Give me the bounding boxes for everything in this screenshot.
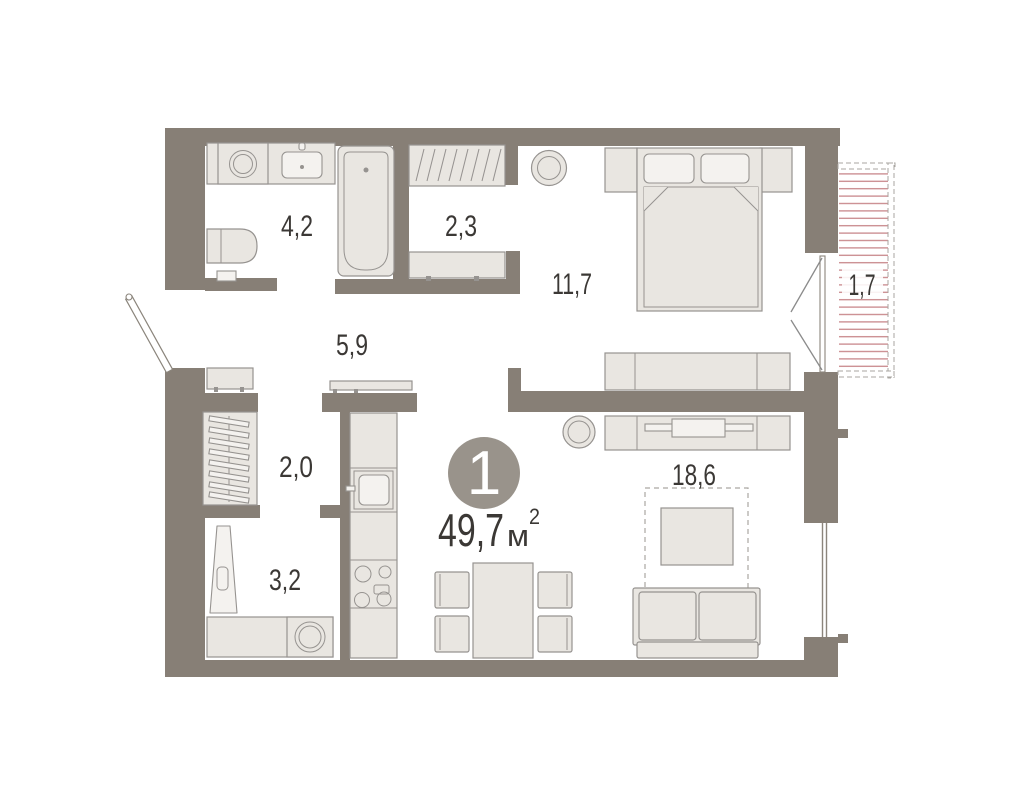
living-room-furniture (563, 416, 790, 658)
total-area-value: 49,7 (438, 504, 504, 556)
pouf-icon (563, 416, 595, 448)
total-area: 49,7 м 2 (438, 504, 540, 556)
sofa-icon (633, 588, 760, 658)
wall-right-mid (804, 372, 838, 523)
wall-dressing-stub-upper (505, 145, 518, 185)
wall-left-upper (165, 128, 205, 290)
unit-number: 1 (467, 439, 501, 508)
dining-set (435, 563, 572, 658)
tv-console-icon (605, 416, 790, 450)
balcony-rail-right (888, 163, 894, 378)
nightstand-left (605, 148, 637, 192)
room-label-dressing: 2,3 (445, 210, 477, 243)
unit-badge: 1 (448, 437, 520, 509)
wall-stub-window-bottom (838, 634, 848, 643)
bathtub-icon (338, 146, 394, 276)
wall-kitchen-top (322, 393, 417, 412)
living-window-icon (819, 519, 829, 641)
dresser-icon (605, 353, 790, 390)
entry-console-icon (207, 368, 253, 392)
wall-bath-bottom-left (205, 278, 277, 291)
wall-left-lower (165, 368, 205, 677)
room-label-hallway: 5,9 (336, 329, 368, 362)
dining-table-icon (473, 563, 533, 658)
floor-plan: 1 49,7 м 2 4,2 2,3 11,7 5,9 2,0 3,2 18,6… (0, 0, 1024, 807)
nightstand-right (760, 148, 792, 192)
total-area-superscript: 2 (529, 504, 540, 529)
wall-right-bedroom (805, 128, 838, 253)
wall-kitchen-left (340, 412, 350, 660)
floor-plan-svg: 1 49,7 м 2 4,2 2,3 11,7 5,9 2,0 3,2 18,6… (0, 0, 1024, 807)
chair-icon (538, 572, 572, 608)
balcony-rail-bottom (838, 371, 894, 377)
ironing-board-icon (210, 526, 237, 613)
total-area-unit: м (507, 518, 529, 553)
mirror-icon (532, 151, 567, 186)
wardrobe-rack-icon (409, 145, 505, 186)
chair-icon (435, 616, 469, 652)
kitchen-shelf (330, 381, 412, 393)
wall-stub-window-top (838, 429, 848, 438)
wall-closet-top-left (203, 393, 258, 412)
chair-icon (435, 572, 469, 608)
wall-bath-dressing-divider (393, 145, 409, 285)
wall-closet-bottom-left (203, 505, 260, 518)
balcony-door-icon (791, 256, 825, 372)
room-label-closet: 2,0 (279, 451, 313, 484)
wall-bath-bottom-right (335, 279, 518, 294)
wall-divider-stub (508, 368, 521, 393)
wall-right-lower (804, 637, 838, 677)
closet-rack-icon (203, 412, 257, 505)
wall-dressing-stub-lower (506, 251, 520, 294)
room-label-bathroom: 4,2 (281, 210, 313, 243)
room-label-living: 18,6 (672, 459, 716, 492)
toilet-icon (207, 229, 257, 281)
dryer-icon (287, 617, 333, 657)
coffee-table-icon (661, 508, 733, 565)
chair-icon (538, 616, 572, 652)
wall-bedroom-living-divider (508, 391, 806, 412)
bench-icon (409, 252, 505, 281)
room-label-laundry: 3,2 (269, 564, 301, 597)
room-label-balcony: 1,7 (849, 269, 876, 302)
entry-door-icon (126, 294, 173, 373)
wall-bottom (165, 660, 838, 677)
balcony-rail-top (838, 163, 895, 169)
kitchen-units (350, 413, 397, 658)
double-bed-icon (637, 148, 762, 311)
room-label-bedroom: 11,7 (552, 268, 592, 301)
washing-machine-icon (218, 143, 268, 184)
